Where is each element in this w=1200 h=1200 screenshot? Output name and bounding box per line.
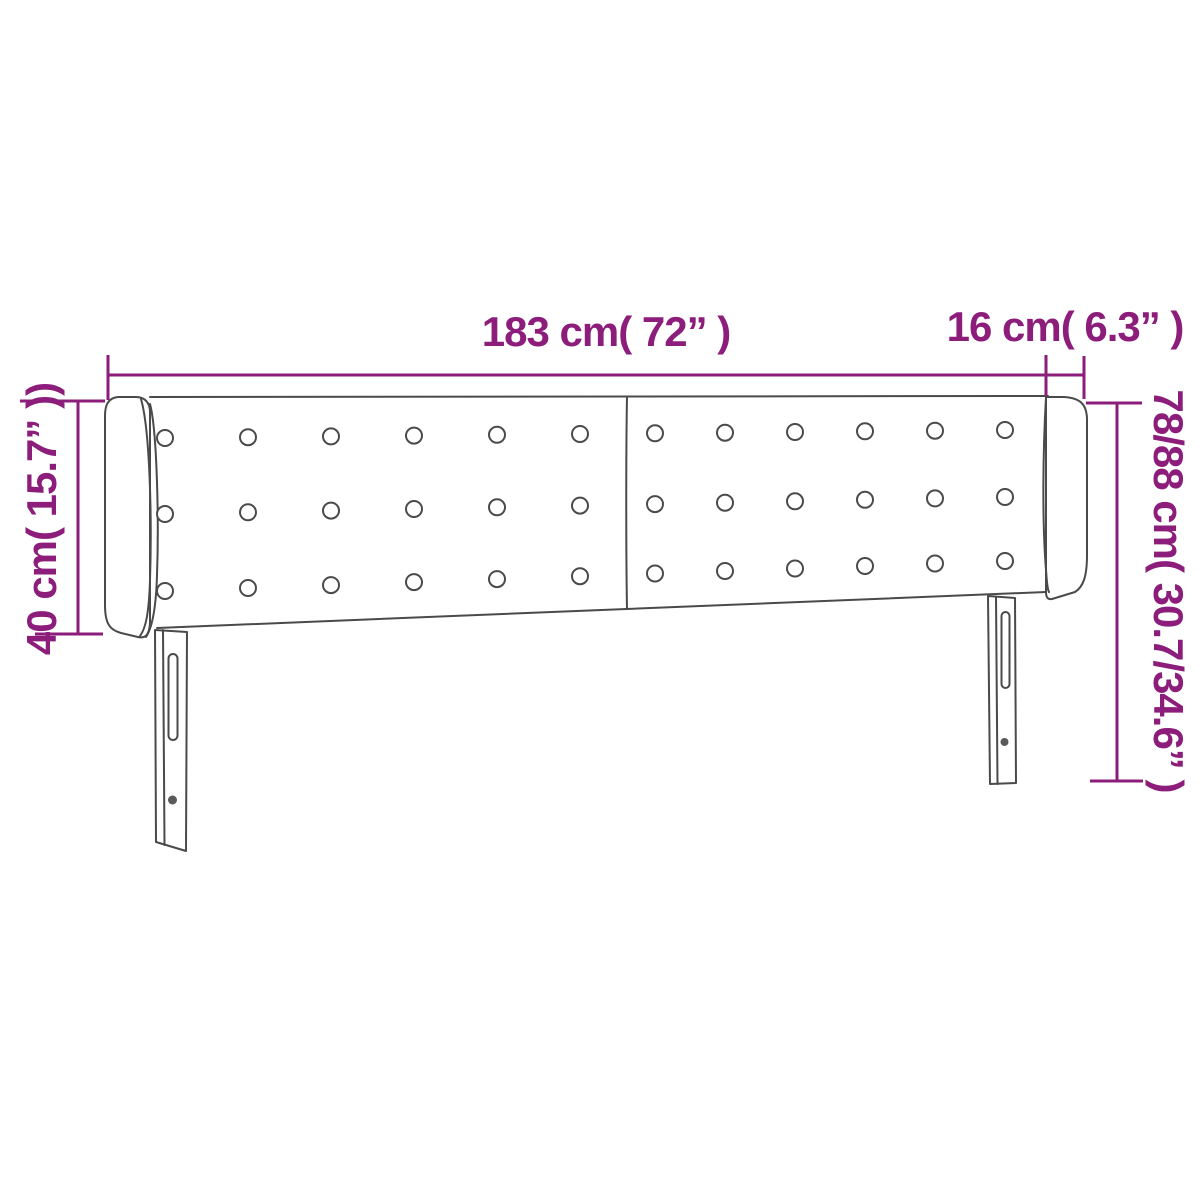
- tufting-button: [323, 428, 339, 444]
- headboard-panel: [144, 396, 1048, 632]
- right-wing: [1043, 397, 1087, 599]
- tufting-button: [717, 563, 733, 579]
- total-height-label: 78/88 cm( 30.7/34.6” ): [1144, 390, 1192, 793]
- tufting-button: [857, 558, 873, 574]
- tufting-button: [489, 427, 505, 443]
- tufting-button: [997, 553, 1013, 569]
- tufting-button: [240, 429, 256, 445]
- left-wing: [105, 397, 158, 637]
- tufting-button: [857, 492, 873, 508]
- right-leg-hole: [1001, 738, 1009, 746]
- tufting-button: [572, 498, 588, 514]
- wing-height-label: 40 cm( 15.7” )): [18, 383, 66, 655]
- panel-middle-seam: [626, 397, 627, 609]
- tufting-button: [489, 499, 505, 515]
- tufting-button: [997, 489, 1013, 505]
- left-leg: [155, 630, 187, 851]
- tufting-button: [240, 504, 256, 520]
- tufting-button: [647, 566, 663, 582]
- tufting-button: [717, 495, 733, 511]
- panel-top-edge: [150, 396, 1048, 397]
- tufting-button: [647, 496, 663, 512]
- tufting-button: [572, 568, 588, 584]
- tufting-button: [787, 493, 803, 509]
- tufting-button: [406, 428, 422, 444]
- side-depth-label: 16 cm( 6.3” ): [947, 303, 1184, 351]
- tufting-button: [406, 574, 422, 590]
- tufting-button: [572, 426, 588, 442]
- tufting-button: [787, 424, 803, 440]
- right-leg: [988, 596, 1016, 784]
- tufting-button: [647, 425, 663, 441]
- tufting-button: [927, 423, 943, 439]
- tufting-button: [489, 571, 505, 587]
- dimension-diagram: 183 cm( 72” ) 16 cm( 6.3” ) 40 cm( 15.7”…: [0, 0, 1200, 1200]
- tufting-button: [157, 583, 173, 599]
- tufting-button: [787, 561, 803, 577]
- left-leg-hole: [168, 796, 177, 805]
- tufting-button: [857, 423, 873, 439]
- tufting-button: [997, 422, 1013, 438]
- right-leg-slot: [1002, 612, 1010, 688]
- tufting-button: [927, 556, 943, 572]
- tufting-button: [240, 580, 256, 596]
- tufting-button: [157, 506, 173, 522]
- tufting-button: [717, 425, 733, 441]
- tufting-button: [406, 501, 422, 517]
- tufting-button: [157, 430, 173, 446]
- tufting-button: [323, 503, 339, 519]
- tufting-button: [323, 577, 339, 593]
- headboard-drawing: [0, 0, 1200, 1200]
- front-width-label: 183 cm( 72” ): [482, 308, 730, 356]
- tufting-button: [927, 490, 943, 506]
- left-leg-slot: [169, 654, 178, 740]
